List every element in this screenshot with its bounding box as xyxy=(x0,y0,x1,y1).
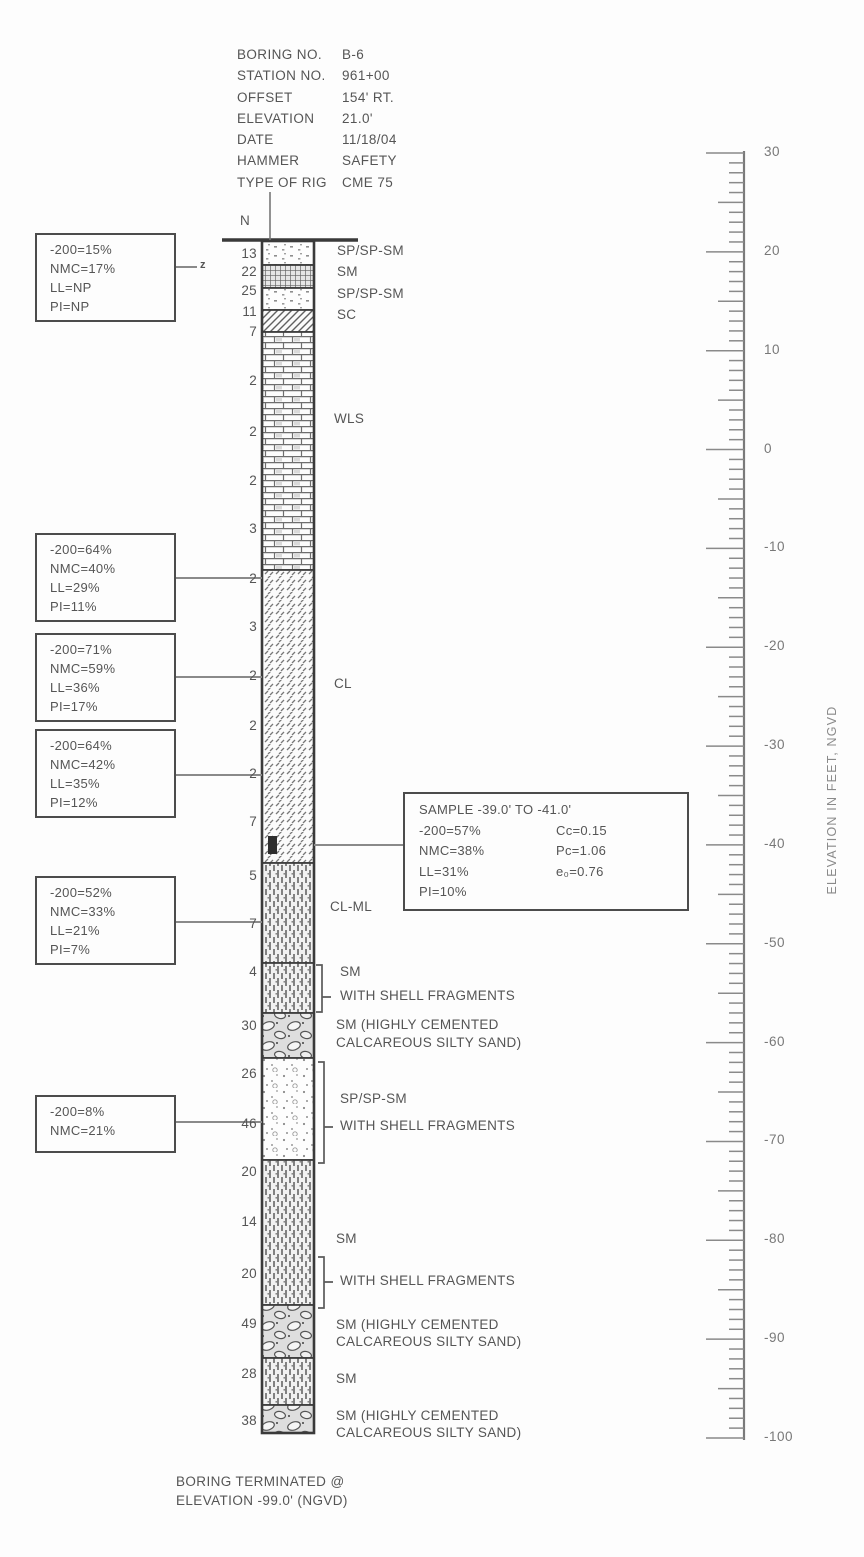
header-row: BORING NO.B-6 xyxy=(237,44,397,65)
soil-label: SM xyxy=(336,1371,357,1386)
n-value: 2 xyxy=(224,766,257,781)
header-field-value: 21.0' xyxy=(342,108,373,129)
lab-test-line: PI=12% xyxy=(50,793,168,812)
boring-header: BORING NO.B-6STATION NO.961+00OFFSET154'… xyxy=(237,44,397,193)
header-field-label: ELEVATION xyxy=(237,108,342,129)
header-field-value: CME 75 xyxy=(342,172,393,193)
lab-test-line: NMC=42% xyxy=(50,755,168,774)
soil-layer xyxy=(262,1405,314,1433)
elevation-tick-label: 20 xyxy=(764,243,780,258)
n-value: 20 xyxy=(224,1266,257,1281)
soil-layer xyxy=(262,1358,314,1405)
soil-label: SP/SP-SM xyxy=(337,286,404,301)
header-field-label: OFFSET xyxy=(237,87,342,108)
header-field-label: DATE xyxy=(237,129,342,150)
soil-layer xyxy=(262,570,314,863)
lab-test-callout: -200=8%NMC=21% xyxy=(35,1095,176,1153)
elevation-tick-label: 0 xyxy=(764,441,772,456)
header-field-label: BORING NO. xyxy=(237,44,342,65)
lab-test-line: PI=11% xyxy=(50,597,168,616)
soil-layer xyxy=(262,241,314,265)
soil-label: WITH SHELL FRAGMENTS xyxy=(340,1273,515,1288)
n-value: 2 xyxy=(224,668,257,683)
lab-test-line: NMC=40% xyxy=(50,559,168,578)
n-value: 4 xyxy=(224,964,257,979)
n-value: 7 xyxy=(224,324,257,339)
n-value: 2 xyxy=(224,373,257,388)
header-field-label: STATION NO. xyxy=(237,65,342,86)
soil-layer xyxy=(262,1305,314,1358)
leader-end-symbol: z xyxy=(200,259,206,271)
n-value: 26 xyxy=(224,1066,257,1081)
terminated-line2: ELEVATION -99.0' (NGVD) xyxy=(176,1492,348,1511)
soil-label: SM (HIGHLY CEMENTED xyxy=(336,1408,499,1423)
header-field-value: SAFETY xyxy=(342,150,397,171)
lab-test-line: -200=71% xyxy=(50,640,168,659)
elevation-tick-label: 30 xyxy=(764,144,780,159)
lab-test-line: LL=36% xyxy=(50,678,168,697)
sample-data-left-column: -200=57%NMC=38%LL=31%PI=10% xyxy=(419,821,556,903)
n-value: 11 xyxy=(224,304,257,319)
n-value: 2 xyxy=(224,718,257,733)
elevation-tick-label: -30 xyxy=(764,737,785,752)
n-value: 7 xyxy=(224,814,257,829)
header-field-label: TYPE OF RIG xyxy=(237,172,342,193)
boring-terminated-note: BORING TERMINATED @ ELEVATION -99.0' (NG… xyxy=(176,1473,348,1510)
header-row: HAMMERSAFETY xyxy=(237,150,397,171)
header-row: TYPE OF RIGCME 75 xyxy=(237,172,397,193)
soil-label: WITH SHELL FRAGMENTS xyxy=(340,988,515,1003)
soil-layer xyxy=(262,963,314,1013)
sample-data-line: NMC=38% xyxy=(419,841,556,862)
elevation-tick-label: -20 xyxy=(764,638,785,653)
soil-label: CL xyxy=(334,676,352,691)
n-value: 3 xyxy=(224,521,257,536)
lab-test-line: -200=64% xyxy=(50,736,168,755)
n-value: 13 xyxy=(224,246,257,261)
n-value: 30 xyxy=(224,1018,257,1033)
lab-test-callout: -200=15%NMC=17%LL=NPPI=NP xyxy=(35,233,176,322)
soil-label: WLS xyxy=(334,411,364,426)
lab-test-line: -200=64% xyxy=(50,540,168,559)
sample-data-line: Cc=0.15 xyxy=(556,821,607,842)
soil-label: SM xyxy=(336,1231,357,1246)
header-row: ELEVATION21.0' xyxy=(237,108,397,129)
lab-test-line: NMC=33% xyxy=(50,902,168,921)
lab-test-line: NMC=59% xyxy=(50,659,168,678)
n-value: 22 xyxy=(224,264,257,279)
soil-label: CL-ML xyxy=(330,899,372,914)
n-value: 2 xyxy=(224,473,257,488)
soil-layer xyxy=(262,1160,314,1305)
soil-label: SP/SP-SM xyxy=(337,243,404,258)
n-value: 14 xyxy=(224,1214,257,1229)
sample-title: SAMPLE -39.0' TO -41.0' xyxy=(419,800,677,821)
n-value: 20 xyxy=(224,1164,257,1179)
n-value: 46 xyxy=(224,1116,257,1131)
lab-test-line: LL=21% xyxy=(50,921,168,940)
soil-label: WITH SHELL FRAGMENTS xyxy=(340,1118,515,1133)
header-field-label: HAMMER xyxy=(237,150,342,171)
lab-test-callout: -200=52%NMC=33%LL=21%PI=7% xyxy=(35,876,176,965)
lab-test-line: LL=29% xyxy=(50,578,168,597)
lab-test-callout: -200=64%NMC=42%LL=35%PI=12% xyxy=(35,729,176,818)
sample-data-callout: SAMPLE -39.0' TO -41.0' -200=57%NMC=38%L… xyxy=(403,792,689,911)
n-value: 28 xyxy=(224,1366,257,1381)
shell-bracket xyxy=(318,1257,333,1308)
header-row: STATION NO.961+00 xyxy=(237,65,397,86)
boring-log-sheet: BORING NO.B-6STATION NO.961+00OFFSET154'… xyxy=(0,0,864,1557)
elevation-tick-label: -50 xyxy=(764,935,785,950)
n-value: 2 xyxy=(224,571,257,586)
soil-layer xyxy=(262,288,314,310)
lab-test-line: LL=NP xyxy=(50,278,168,297)
sample-data-right-column: Cc=0.15Pc=1.06e₀=0.76 xyxy=(556,821,607,903)
lab-test-line: -200=52% xyxy=(50,883,168,902)
n-value: 2 xyxy=(224,424,257,439)
terminated-line1: BORING TERMINATED @ xyxy=(176,1473,348,1492)
n-column-label: N xyxy=(240,213,250,228)
lab-test-line: NMC=17% xyxy=(50,259,168,278)
header-row: OFFSET154' RT. xyxy=(237,87,397,108)
soil-label: SC xyxy=(337,307,356,322)
lab-test-line: PI=17% xyxy=(50,697,168,716)
soil-label: CALCAREOUS SILTY SAND) xyxy=(336,1334,521,1349)
n-value: 38 xyxy=(224,1413,257,1428)
sample-data-line: e₀=0.76 xyxy=(556,862,607,883)
header-field-value: 154' RT. xyxy=(342,87,394,108)
soil-label: SM (HIGHLY CEMENTED xyxy=(336,1317,499,1332)
header-field-value: B-6 xyxy=(342,44,364,65)
lab-test-line: LL=35% xyxy=(50,774,168,793)
soil-label: SP/SP-SM xyxy=(340,1091,407,1106)
lab-test-line: -200=8% xyxy=(50,1102,168,1121)
n-value: 7 xyxy=(224,916,257,931)
soil-label: CALCAREOUS SILTY SAND) xyxy=(336,1425,521,1440)
elevation-tick-label: 10 xyxy=(764,342,780,357)
soil-label: SM xyxy=(337,264,358,279)
elevation-axis-label: ELEVATION IN FEET, NGVD xyxy=(825,700,839,900)
soil-label: SM (HIGHLY CEMENTED xyxy=(336,1017,499,1032)
lab-test-line: NMC=21% xyxy=(50,1121,168,1140)
lab-test-line: PI=NP xyxy=(50,297,168,316)
elevation-tick-label: -60 xyxy=(764,1034,785,1049)
lab-test-line: PI=7% xyxy=(50,940,168,959)
soil-label: SM xyxy=(340,964,361,979)
elevation-tick-label: -80 xyxy=(764,1231,785,1246)
n-value: 3 xyxy=(224,619,257,634)
n-value: 49 xyxy=(224,1316,257,1331)
soil-layer xyxy=(262,863,314,963)
n-value: 25 xyxy=(224,283,257,298)
n-value: 5 xyxy=(224,868,257,883)
soil-layer xyxy=(262,310,314,332)
soil-layer xyxy=(262,1058,314,1160)
shell-fragment-brackets xyxy=(316,965,333,1308)
sample-data-columns: -200=57%NMC=38%LL=31%PI=10% Cc=0.15Pc=1.… xyxy=(419,821,677,903)
elevation-scale-ticks xyxy=(706,151,744,1440)
sample-data-line: -200=57% xyxy=(419,821,556,842)
sample-data-line: Pc=1.06 xyxy=(556,841,607,862)
shell-bracket xyxy=(316,965,331,1012)
lab-test-callout: -200=64%NMC=40%LL=29%PI=11% xyxy=(35,533,176,622)
soil-layer xyxy=(262,265,314,288)
shelby-sample-mark xyxy=(268,836,277,854)
lab-test-line: -200=15% xyxy=(50,240,168,259)
header-row: DATE11/18/04 xyxy=(237,129,397,150)
soil-layer xyxy=(262,332,314,570)
sample-data-line: LL=31% xyxy=(419,862,556,883)
header-field-value: 11/18/04 xyxy=(342,129,397,150)
elevation-tick-label: -10 xyxy=(764,539,785,554)
elevation-tick-label: -100 xyxy=(764,1429,793,1444)
soil-label: CALCAREOUS SILTY SAND) xyxy=(336,1035,521,1050)
elevation-tick-label: -70 xyxy=(764,1132,785,1147)
elevation-tick-label: -90 xyxy=(764,1330,785,1345)
sample-data-line: PI=10% xyxy=(419,882,556,903)
shell-bracket xyxy=(318,1062,333,1163)
lab-test-callout: -200=71%NMC=59%LL=36%PI=17% xyxy=(35,633,176,722)
elevation-tick-label: -40 xyxy=(764,836,785,851)
header-field-value: 961+00 xyxy=(342,65,390,86)
soil-layer xyxy=(262,1013,314,1058)
